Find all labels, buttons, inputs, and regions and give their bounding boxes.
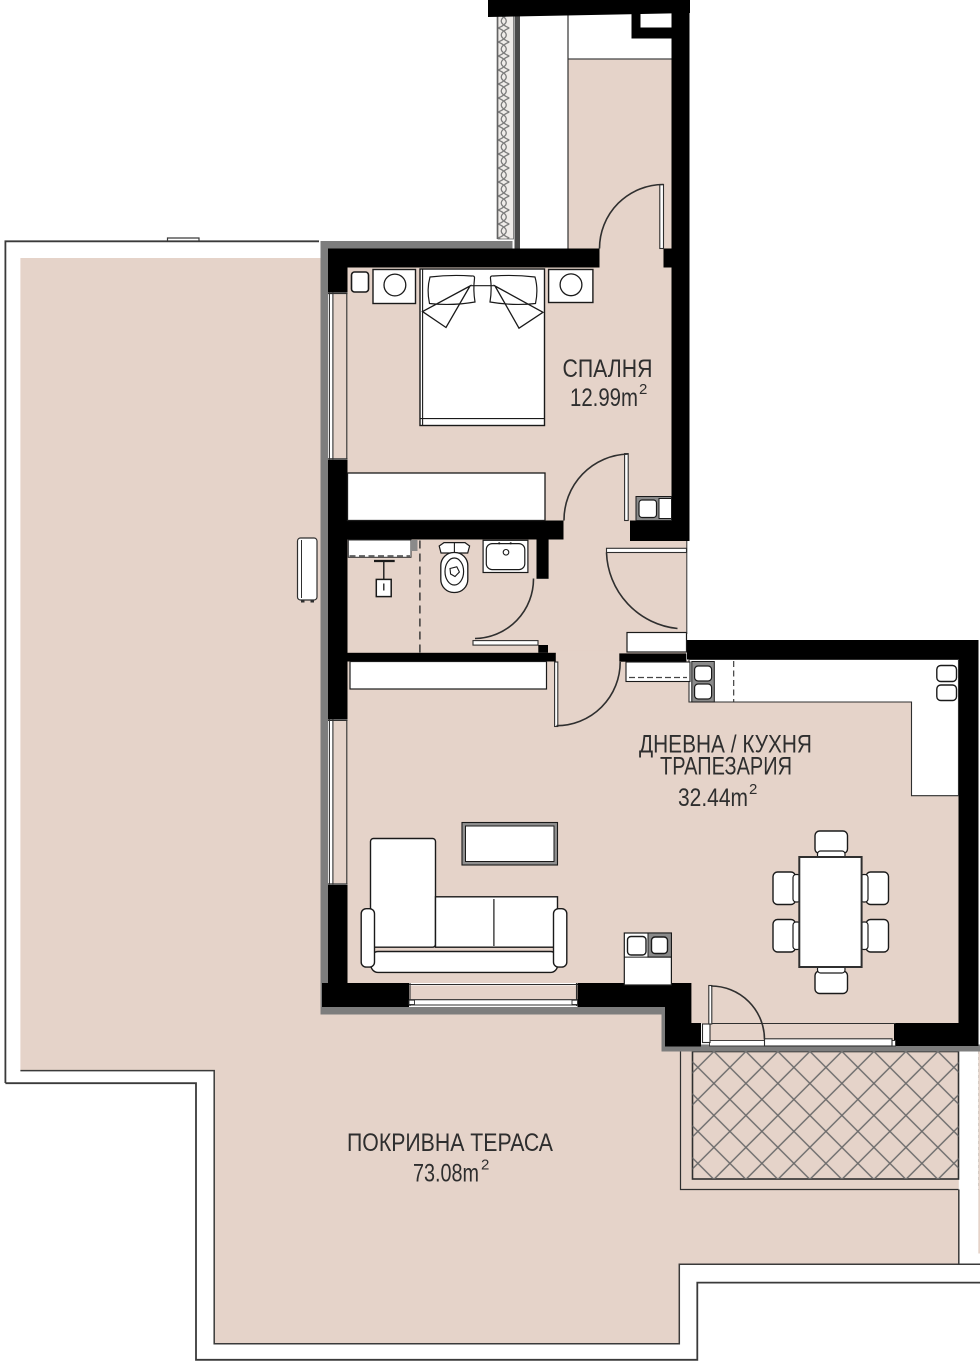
svg-text:32.44m: 32.44m: [678, 784, 748, 812]
svg-text:ТРАПЕЗАРИЯ: ТРАПЕЗАРИЯ: [660, 753, 792, 781]
svg-text:СПАЛНЯ: СПАЛНЯ: [563, 355, 653, 383]
svg-text:73.08m: 73.08m: [413, 1160, 479, 1188]
svg-text:2: 2: [481, 1157, 489, 1174]
svg-text:12.99m: 12.99m: [570, 384, 638, 412]
svg-text:2: 2: [639, 381, 647, 398]
svg-text:ПОКРИВНА ТЕРАСА: ПОКРИВНА ТЕРАСА: [347, 1129, 553, 1157]
svg-text:2: 2: [749, 781, 757, 798]
